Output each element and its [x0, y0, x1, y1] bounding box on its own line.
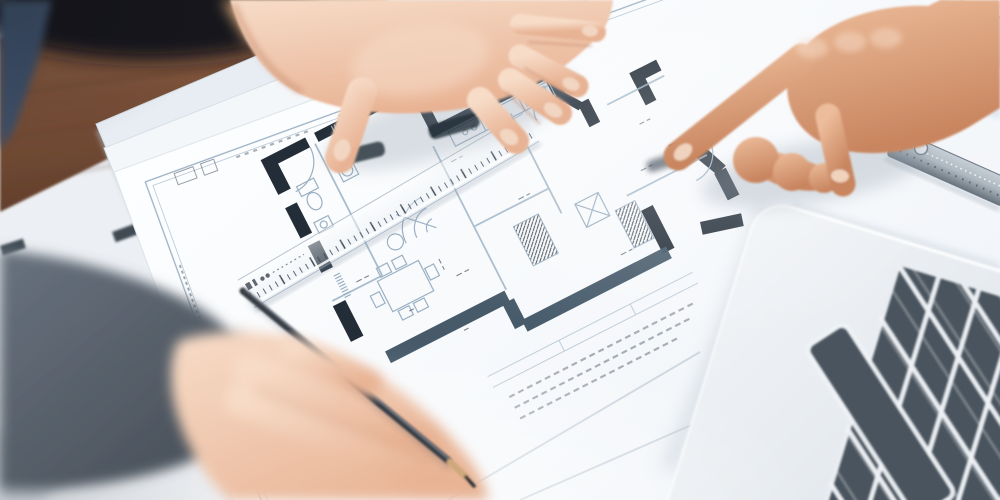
- curled-knuckle: [773, 153, 811, 191]
- pointing-hand: [645, 0, 1000, 222]
- photo-scene: [0, 0, 1000, 500]
- pointing-index-finger: [678, 58, 802, 156]
- curled-knuckle: [733, 137, 779, 183]
- knuckle-highlight: [796, 38, 828, 58]
- knuckle-highlight: [834, 32, 866, 52]
- pointing-hand-skin: [670, 0, 1000, 193]
- pencil-hand-group: [0, 250, 488, 500]
- resting-hand: [230, 0, 613, 191]
- hands-layer: [0, 0, 1000, 500]
- knuckle-highlight: [870, 28, 902, 48]
